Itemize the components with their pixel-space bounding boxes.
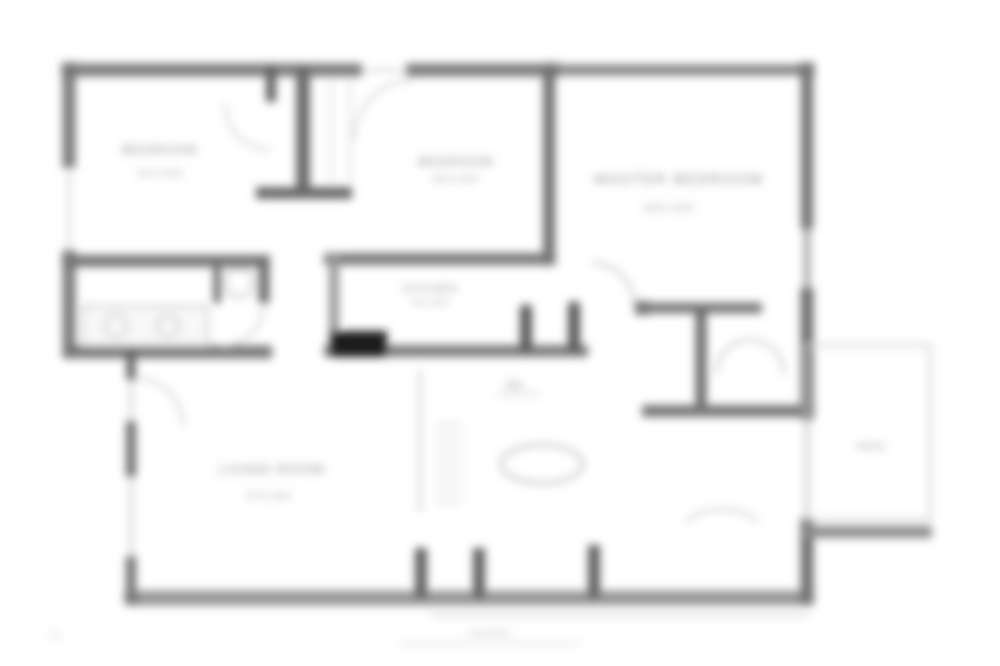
svg-text:First Floor: First Floor xyxy=(470,628,511,638)
svg-text:MASTER BEDROOM: MASTER BEDROOM xyxy=(594,171,763,188)
svg-text:KITCHEN: KITCHEN xyxy=(402,283,457,295)
svg-text:BEDROOM: BEDROOM xyxy=(122,142,198,157)
svg-text:10-0 x 10-6: 10-0 x 10-6 xyxy=(432,174,478,184)
svg-text:LIVING ROOM: LIVING ROOM xyxy=(219,461,326,477)
svg-text:13-0 x 11-6: 13-0 x 11-6 xyxy=(643,203,693,214)
svg-text:17-6 x 13-0: 17-6 x 13-0 xyxy=(245,491,291,501)
svg-text:BEDROOM: BEDROOM xyxy=(418,154,494,169)
svg-text:12: 12 xyxy=(50,630,60,640)
svg-text:DN: DN xyxy=(505,378,522,392)
svg-text:11-0 x 10-6: 11-0 x 10-6 xyxy=(138,168,183,178)
svg-text:9-0 x 10-0: 9-0 x 10-0 xyxy=(412,298,449,307)
svg-text:PATIO: PATIO xyxy=(857,442,886,453)
